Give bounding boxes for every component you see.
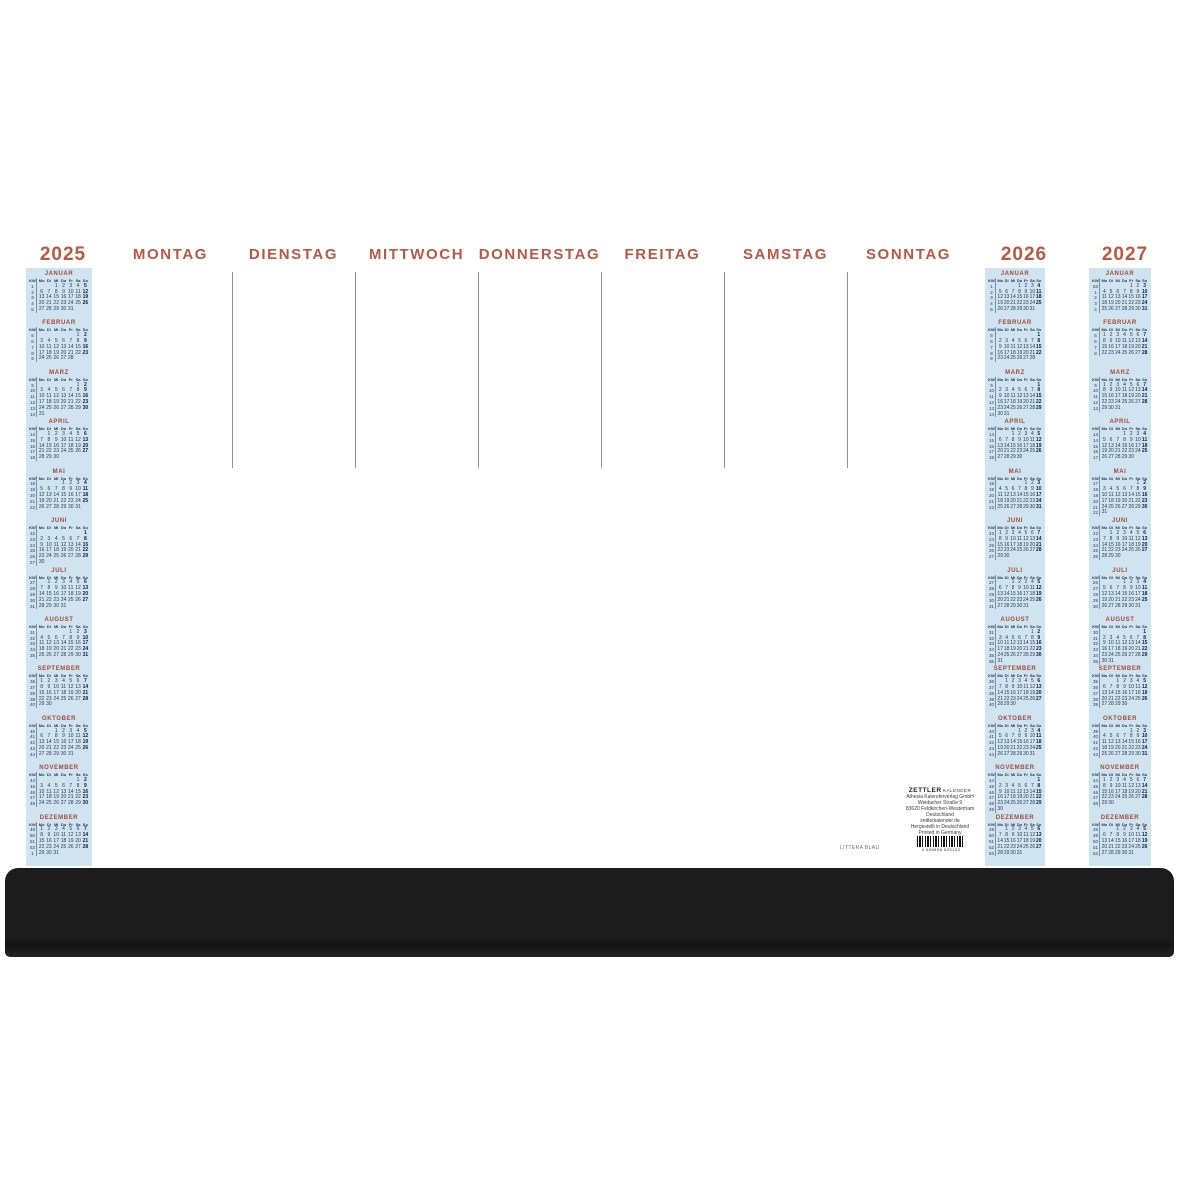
mini-week-row: 92425262728 — [29, 356, 89, 362]
year-label-2027: 2027 — [1089, 245, 1161, 265]
mini-month-title: JULI — [29, 568, 89, 575]
mini-month-oktober-2027: OKTOBERKWMoDiMiDoFrSaSo39123404567891041… — [1089, 715, 1151, 764]
year-label-2025: 2025 — [24, 245, 102, 265]
mini-month-title: DEZEMBER — [1092, 815, 1148, 822]
weekday-header-mittwoch: MITTWOCH — [355, 245, 478, 265]
mini-month-title: MÄRZ — [1092, 370, 1148, 377]
day-cell — [1128, 801, 1135, 807]
day-cell — [82, 752, 89, 758]
day-cell: 30 — [1101, 659, 1108, 665]
mini-month-mai-2026: MAIKWMoDiMiDoFrSaSo181231945678910201112… — [985, 468, 1045, 517]
day-cell — [1121, 510, 1128, 516]
day-cell — [1141, 702, 1148, 708]
day-cell — [1141, 659, 1148, 665]
day-cell — [1114, 659, 1121, 665]
day-cell: 30 — [60, 752, 67, 758]
day-cell: 25 — [45, 801, 52, 807]
day-cell: 25 — [38, 653, 45, 659]
mini-month-mai-2025: MAIKWMoDiMiDoFrSaSo181234195678910112012… — [26, 468, 92, 517]
day-cell: 31 — [1101, 510, 1108, 516]
day-cell: 29 — [1114, 702, 1121, 708]
day-cell: 29 — [60, 505, 67, 511]
mini-month-august-2026: AUGUSTKWMoDiMiDoFrSaSo311232345678933101… — [985, 616, 1045, 665]
mini-month-september-2025: SEPTEMBERKWMoDiMiDoFrSaSo361234567378910… — [26, 665, 92, 714]
mini-week-row: 522728293031 — [1092, 851, 1148, 857]
day-cell — [74, 702, 81, 708]
mini-week-row: 9232425262728 — [988, 356, 1042, 362]
day-cell: 30 — [1135, 752, 1142, 758]
day-cell — [74, 604, 81, 610]
day-cell: 31 — [82, 653, 89, 659]
pad-base-rail — [5, 868, 1174, 957]
mini-month-märz-2027: MÄRZKWMoDiMiDoFrSaSo91234567108910111213… — [1089, 369, 1151, 418]
day-cell: 30 — [38, 560, 45, 566]
day-cell: 28 — [1114, 455, 1121, 461]
article-label: LITTERA BLAU — [840, 845, 890, 851]
day-cell: 29 — [1101, 801, 1108, 807]
year-label-2026: 2026 — [988, 245, 1060, 265]
mini-week-row: 312728293031 — [988, 604, 1042, 610]
day-cell — [1121, 659, 1128, 665]
week-number: 13 — [1092, 406, 1100, 412]
mini-week-row: 52728293031 — [29, 307, 89, 313]
year-strip-2027: JANUARKWMoDiMiDoFrSaSo531231456789102111… — [1089, 268, 1151, 866]
day-cell: 27 — [45, 505, 52, 511]
day-cell — [1141, 510, 1148, 516]
day-cell: 28 — [1101, 554, 1108, 560]
mini-month-september-2027: SEPTEMBERKWMoDiMiDoFrSaSo351234536678910… — [1089, 665, 1151, 714]
mini-month-september-2026: SEPTEMBERKWMoDiMiDoFrSaSo361234563778910… — [985, 665, 1045, 714]
day-cell — [1141, 554, 1148, 560]
mini-month-title: DEZEMBER — [29, 815, 89, 822]
week-number: 44 — [29, 752, 37, 758]
day-cell — [1128, 554, 1135, 560]
day-cell — [67, 851, 74, 857]
day-cell: 31 — [1135, 604, 1142, 610]
weekday-header-donnerstag: DONNERSTAG — [478, 245, 601, 265]
day-cell: 28 — [60, 653, 67, 659]
mini-month-title: NOVEMBER — [29, 765, 89, 772]
day-cell: 26 — [45, 653, 52, 659]
day-cell — [1036, 807, 1042, 813]
week-number: 18 — [988, 455, 996, 461]
mini-month-märz-2025: MÄRZKWMoDiMiDoFrSaSo91210345678911101112… — [26, 369, 92, 418]
day-cell — [1135, 455, 1142, 461]
day-cell: 26 — [53, 356, 60, 362]
day-cell: 27 — [60, 801, 67, 807]
week-number: 1 — [29, 851, 37, 857]
week-number: 40 — [29, 702, 37, 708]
day-cell — [1128, 659, 1135, 665]
day-cell: 29 — [1121, 604, 1128, 610]
day-cell — [82, 702, 89, 708]
day-cell: 27 — [1101, 851, 1108, 857]
mini-week-row: 3927282930 — [1092, 702, 1148, 708]
desk-pad: 2025 MONTAG DIENSTAG MITTWOCH DONNERSTAG… — [0, 0, 1179, 1179]
mini-month-title: SEPTEMBER — [29, 666, 89, 673]
mini-week-row: 2730 — [29, 560, 89, 566]
week-number: 14 — [29, 412, 37, 418]
mini-month-title: APRIL — [1092, 419, 1148, 426]
day-cell: 30 — [1128, 455, 1135, 461]
mini-month-title: MAI — [988, 469, 1042, 476]
mini-month-dezember-2027: DEZEMBERKWMoDiMiDoFrSaSo4812345496789101… — [1089, 814, 1151, 863]
day-cell: 30 — [1108, 801, 1115, 807]
week-number: 27 — [988, 554, 996, 560]
day-cell — [82, 412, 89, 418]
day-cell — [67, 455, 74, 461]
day-cell — [1114, 801, 1121, 807]
day-cell: 31 — [38, 412, 45, 418]
day-cell: 27 — [1114, 307, 1121, 313]
year-strip-2025: JANUARKWMoDiMiDoFrSaSo112345267891011123… — [26, 268, 92, 866]
mini-week-row: 2225262728293031 — [988, 505, 1042, 511]
day-cell: 26 — [53, 801, 60, 807]
day-cell: 31 — [67, 752, 74, 758]
week-number: 31 — [988, 604, 996, 610]
mini-month-title: DEZEMBER — [988, 815, 1042, 822]
mini-month-juni-2026: JUNIKWMoDiMiDoFrSaSo23123456724891011121… — [985, 517, 1045, 566]
day-cell: 31 — [1108, 659, 1115, 665]
day-cell: 28 — [1114, 604, 1121, 610]
day-cell — [82, 505, 89, 511]
day-cell: 30 — [1121, 851, 1128, 857]
mini-week-row: 272930 — [988, 554, 1042, 560]
day-cell — [1135, 510, 1142, 516]
week-number: 22 — [1092, 510, 1100, 516]
day-cell: 29 — [53, 752, 60, 758]
day-cell: 25 — [1121, 351, 1128, 357]
day-cell: 27 — [38, 752, 45, 758]
day-cell — [74, 307, 81, 313]
mini-month-title: MAI — [1092, 469, 1148, 476]
day-cell: 26 — [1128, 351, 1135, 357]
day-cell: 26 — [1101, 604, 1108, 610]
day-cell: 27 — [1114, 752, 1121, 758]
day-cell — [1036, 554, 1042, 560]
day-cell — [1036, 356, 1042, 362]
day-cell: 28 — [1108, 851, 1115, 857]
day-cell: 28 — [45, 307, 52, 313]
mini-month-title: MÄRZ — [988, 370, 1042, 377]
mini-month-februar-2025: FEBRUARKWMoDiMiDoFrSaSo51263456789710111… — [26, 319, 92, 368]
mini-month-november-2027: NOVEMBERKWMoDiMiDoFrSaSo4412345674589101… — [1089, 764, 1151, 813]
mini-week-row: 402930 — [29, 702, 89, 708]
day-cell: 28 — [45, 752, 52, 758]
day-cell: 28 — [38, 604, 45, 610]
mini-month-title: SEPTEMBER — [988, 666, 1042, 673]
day-cell: 27 — [53, 653, 60, 659]
mini-month-title: JULI — [988, 568, 1042, 575]
day-cell: 22 — [1101, 351, 1108, 357]
mini-month-title: AUGUST — [29, 617, 89, 624]
mini-week-row: 353031 — [1092, 659, 1148, 665]
mini-month-januar-2026: JANUARKWMoDiMiDoFrSaSo112342567891011312… — [985, 270, 1045, 319]
day-cell: 30 — [1128, 604, 1135, 610]
week-number: 4 — [1092, 307, 1100, 313]
mini-month-title: MÄRZ — [29, 370, 89, 377]
day-cell: 29 — [1128, 752, 1135, 758]
day-cell — [67, 604, 74, 610]
mini-week-row: 5328293031 — [988, 851, 1042, 857]
mini-month-title: FEBRUAR — [29, 320, 89, 327]
mini-month-title: APRIL — [29, 419, 89, 426]
day-cell — [1135, 851, 1142, 857]
day-cell: 30 — [67, 505, 74, 511]
week-number: 9 — [988, 356, 996, 362]
day-cell — [53, 560, 60, 566]
mini-month-dezember-2025: DEZEMBERKWMoDiMiDoFrSaSo4912345675089101… — [26, 814, 92, 863]
column-divider — [355, 272, 356, 468]
day-cell: 28 — [1108, 702, 1115, 708]
day-cell: 29 — [1128, 307, 1135, 313]
mini-week-row: 3631 — [988, 659, 1042, 665]
week-number: 48 — [1092, 801, 1100, 807]
day-cell — [1141, 604, 1148, 610]
mini-month-title: FEBRUAR — [1092, 320, 1148, 327]
day-cell: 30 — [82, 801, 89, 807]
day-cell — [1135, 659, 1142, 665]
week-number: 30 — [1092, 604, 1100, 610]
day-cell — [53, 412, 60, 418]
day-cell: 28 — [38, 455, 45, 461]
day-cell — [60, 851, 67, 857]
week-number: 43 — [1092, 752, 1100, 758]
day-cell: 28 — [1141, 351, 1148, 357]
mini-month-märz-2026: MÄRZKWMoDiMiDoFrSaSo91102345678119101112… — [985, 369, 1045, 418]
day-cell — [1114, 510, 1121, 516]
mini-week-row: 5262728293031 — [988, 307, 1042, 313]
day-cell: 31 — [67, 307, 74, 313]
week-number: 26 — [1092, 554, 1100, 560]
day-cell: 30 — [1108, 406, 1115, 412]
mini-month-juli-2026: JULIKWMoDiMiDoFrSaSo27123452867891011122… — [985, 567, 1045, 616]
mini-month-mai-2027: MAIKWMoDiMiDoFrSaSo171218345678919101112… — [1089, 468, 1151, 517]
day-cell — [53, 702, 60, 708]
day-cell — [1121, 554, 1128, 560]
day-cell: 27 — [38, 307, 45, 313]
mini-week-row: 4930 — [988, 807, 1042, 813]
mini-month-title: NOVEMBER — [988, 765, 1042, 772]
day-cell — [82, 604, 89, 610]
day-cell: 25 — [1101, 752, 1108, 758]
mini-week-row: 143031 — [988, 412, 1042, 418]
weekday-header-montag: MONTAG — [109, 245, 232, 265]
day-cell: 27 — [60, 356, 67, 362]
day-cell: 29 — [45, 604, 52, 610]
mini-week-row: 26282930 — [1092, 554, 1148, 560]
day-cell — [1108, 510, 1115, 516]
mini-week-row: 1431 — [29, 412, 89, 418]
mini-month-title: JUNI — [29, 518, 89, 525]
weekday-header-dienstag: DIENSTAG — [232, 245, 355, 265]
mini-week-row: 2231 — [1092, 510, 1148, 516]
day-cell: 30 — [45, 851, 52, 857]
day-cell — [1121, 406, 1128, 412]
day-cell — [1128, 702, 1135, 708]
day-cell — [60, 455, 67, 461]
day-cell — [67, 560, 74, 566]
week-number: 44 — [988, 752, 996, 758]
week-number: 35 — [1092, 659, 1100, 665]
day-cell — [60, 412, 67, 418]
mini-month-april-2026: APRILKWMoDiMiDoFrSaSo1412345156789101112… — [985, 418, 1045, 467]
week-number: 27 — [29, 560, 37, 566]
day-cell: 29 — [53, 307, 60, 313]
week-number: 8 — [1092, 351, 1100, 357]
day-cell: 26 — [38, 505, 45, 511]
weekday-header-sonntag: SONNTAG — [847, 245, 970, 265]
day-cell: 31 — [1036, 505, 1042, 511]
brand-suffix: KALENDER — [943, 788, 971, 793]
day-cell — [1128, 406, 1135, 412]
mini-month-januar-2025: JANUARKWMoDiMiDoFrSaSo112345267891011123… — [26, 270, 92, 319]
day-cell — [45, 412, 52, 418]
day-cell: 26 — [1108, 307, 1115, 313]
barcode-bars — [917, 836, 965, 847]
weekday-header-freitag: FREITAG — [601, 245, 724, 265]
mini-week-row: 1827282930 — [988, 455, 1042, 461]
day-cell — [1036, 412, 1042, 418]
day-cell — [1036, 455, 1042, 461]
mini-month-juni-2027: JUNIKWMoDiMiDoFrSaSo22123456237891011121… — [1089, 517, 1151, 566]
week-number: 18 — [29, 455, 37, 461]
mini-week-row: 22262728293031 — [29, 505, 89, 511]
mini-week-row: 18282930 — [29, 455, 89, 461]
column-divider — [601, 272, 602, 468]
day-cell — [1141, 455, 1148, 461]
day-cell: 29 — [67, 653, 74, 659]
mini-month-title: APRIL — [988, 419, 1042, 426]
day-cell: 26 — [1101, 455, 1108, 461]
week-number: 35 — [29, 653, 37, 659]
day-cell: 31 — [1128, 851, 1135, 857]
mini-month-april-2027: APRILKWMoDiMiDoFrSaSo1312341456789101115… — [1089, 418, 1151, 467]
mini-month-januar-2027: JANUARKWMoDiMiDoFrSaSo531231456789102111… — [1089, 270, 1151, 319]
day-cell: 29 — [38, 702, 45, 708]
day-cell — [82, 356, 89, 362]
week-number: 22 — [988, 505, 996, 511]
day-cell: 29 — [1114, 851, 1121, 857]
weekday-header-samstag: SAMSTAG — [724, 245, 847, 265]
day-cell — [74, 412, 81, 418]
day-cell: 24 — [1114, 351, 1121, 357]
mini-week-row: 4325262728293031 — [1092, 752, 1148, 758]
mini-month-title: MAI — [29, 469, 89, 476]
mini-week-row: 425262728293031 — [1092, 307, 1148, 313]
mini-month-title: OKTOBER — [1092, 716, 1148, 723]
mini-month-title: JANUAR — [988, 271, 1042, 278]
mini-week-row: 1293031 — [29, 851, 89, 857]
day-cell — [1121, 801, 1128, 807]
day-cell — [67, 412, 74, 418]
mini-week-row: 482930 — [1092, 801, 1148, 807]
day-cell: 30 — [74, 653, 81, 659]
day-cell — [1141, 851, 1148, 857]
day-cell — [74, 356, 81, 362]
column-divider — [724, 272, 725, 468]
mini-month-oktober-2025: OKTOBERKWMoDiMiDoFrSaSo40123454167891011… — [26, 715, 92, 764]
day-cell — [1036, 752, 1042, 758]
mini-month-title: AUGUST — [988, 617, 1042, 624]
week-number: 36 — [988, 659, 996, 665]
day-cell: 30 — [1135, 307, 1142, 313]
day-cell: 28 — [1121, 307, 1128, 313]
day-cell — [74, 455, 81, 461]
column-divider — [232, 272, 233, 468]
publisher-imprint: ZETTLER KALENDER Athesia Kalenderverlag … — [888, 788, 992, 836]
week-number: 9 — [29, 356, 37, 362]
mini-month-november-2025: NOVEMBERKWMoDiMiDoFrSaSo4412453456789461… — [26, 764, 92, 813]
day-cell: 31 — [74, 505, 81, 511]
day-cell — [74, 851, 81, 857]
mini-month-april-2025: APRILKWMoDiMiDoFrSaSo1412345615789101112… — [26, 418, 92, 467]
day-cell: 24 — [38, 356, 45, 362]
day-cell — [74, 560, 81, 566]
week-number: 52 — [1092, 851, 1100, 857]
day-cell: 29 — [1108, 554, 1115, 560]
day-cell: 30 — [53, 455, 60, 461]
mini-week-row: 822232425262728 — [1092, 351, 1148, 357]
day-cell — [1036, 702, 1042, 708]
week-number: 5 — [988, 307, 996, 313]
day-cell: 28 — [67, 356, 74, 362]
day-cell: 29 — [74, 801, 81, 807]
mini-week-row: 40282930 — [988, 702, 1042, 708]
day-cell: 26 — [1108, 752, 1115, 758]
barcode: 4 006928 023103 — [916, 836, 966, 852]
mini-month-title: JUNI — [1092, 518, 1148, 525]
day-cell — [67, 702, 74, 708]
mini-month-juni-2025: JUNIKWMoDiMiDoFrSaSo22123234567824910111… — [26, 517, 92, 566]
day-cell — [82, 851, 89, 857]
day-cell: 24 — [38, 801, 45, 807]
mini-week-row: 3128293031 — [29, 604, 89, 610]
day-cell: 29 — [1121, 455, 1128, 461]
day-cell — [1135, 406, 1142, 412]
mini-month-title: JULI — [1092, 568, 1148, 575]
mini-month-title: JANUAR — [29, 271, 89, 278]
day-cell — [1135, 702, 1142, 708]
mini-month-title: OKTOBER — [988, 716, 1042, 723]
day-cell — [1141, 801, 1148, 807]
day-cell — [82, 307, 89, 313]
mini-month-august-2025: AUGUSTKWMoDiMiDoFrSaSo311233245678910331… — [26, 616, 92, 665]
day-cell: 29 — [45, 455, 52, 461]
week-number: 5 — [29, 307, 37, 313]
mini-week-row: 13293031 — [1092, 406, 1148, 412]
day-cell — [82, 560, 89, 566]
day-cell: 27 — [1101, 702, 1108, 708]
year-strip-2026: JANUARKWMoDiMiDoFrSaSo112342567891011312… — [985, 268, 1045, 866]
column-divider — [847, 272, 848, 468]
week-number: 17 — [1092, 455, 1100, 461]
day-cell: 27 — [1135, 351, 1142, 357]
day-cell: 29 — [38, 851, 45, 857]
mini-month-title: OKTOBER — [29, 716, 89, 723]
day-cell — [1036, 851, 1042, 857]
mini-month-februar-2027: FEBRUARKWMoDiMiDoFrSaSo51234567689101112… — [1089, 319, 1151, 368]
week-number: 14 — [988, 412, 996, 418]
week-number: 53 — [988, 851, 996, 857]
week-number: 22 — [29, 505, 37, 511]
mini-week-row: 172627282930 — [1092, 455, 1148, 461]
day-cell: 28 — [53, 505, 60, 511]
mini-month-februar-2026: FEBRUARKWMoDiMiDoFrSaSo51623456787910111… — [985, 319, 1045, 368]
day-cell — [1135, 801, 1142, 807]
day-cell — [1036, 659, 1042, 665]
day-cell: 31 — [53, 851, 60, 857]
